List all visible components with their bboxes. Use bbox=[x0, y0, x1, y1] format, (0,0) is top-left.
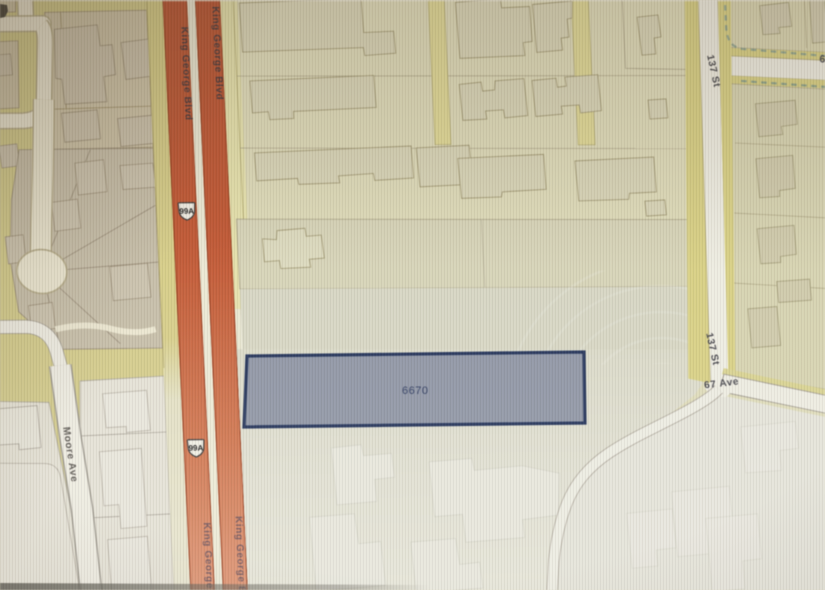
svg-text:99A: 99A bbox=[179, 207, 194, 216]
svg-text:67: 67 bbox=[819, 53, 825, 66]
svg-text:99A: 99A bbox=[188, 444, 203, 453]
svg-text:6670: 6670 bbox=[402, 385, 428, 397]
